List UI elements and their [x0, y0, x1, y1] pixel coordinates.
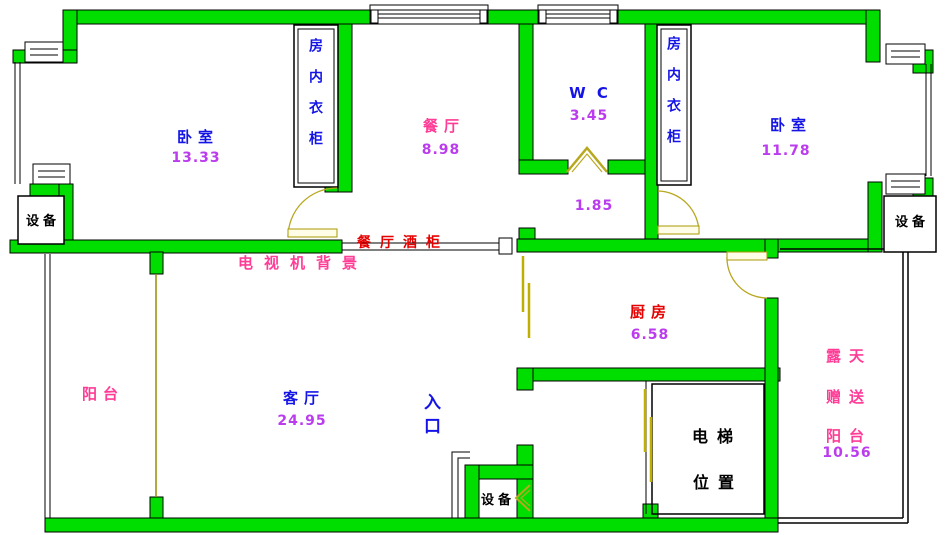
hallway-area: 1.85	[575, 199, 614, 213]
open-balcony-name-line1: 露天	[826, 349, 872, 364]
sliding-door-kitchen	[523, 256, 529, 338]
kitchen-name: 厨房	[630, 305, 672, 320]
door-wc-bifold	[567, 148, 607, 172]
living-area: 24.95	[277, 414, 326, 428]
wardrobe-right-label: 房内衣柜	[666, 36, 680, 160]
window-top-wc	[538, 5, 618, 24]
floorplan: 卧室 13.33 餐厅 8.98 W C 3.45 卧室 11.78 1.85 …	[0, 0, 950, 535]
elevator-label-line2: 位置	[693, 475, 743, 491]
equipment-label-top-right: 设备	[895, 216, 929, 229]
living-name: 客厅	[283, 391, 325, 406]
elevator-label-line1: 电梯	[692, 429, 742, 445]
entrance-label: 入口	[421, 393, 438, 441]
wc-name: W C	[569, 86, 611, 101]
walls	[10, 10, 933, 532]
kitchen-area: 6.58	[631, 328, 670, 342]
window-top-dining	[370, 5, 488, 24]
dining-area: 8.98	[422, 143, 461, 157]
bedroom-right-area: 11.78	[761, 144, 810, 158]
wardrobe-left-label: 房内衣柜	[308, 38, 322, 162]
equipment-label-top-left: 设备	[26, 215, 60, 228]
door-kitchen-balcony	[727, 252, 767, 298]
open-balcony-area: 10.56	[822, 446, 871, 460]
balcony-name: 阳台	[82, 387, 124, 402]
door-bedroom-left	[288, 188, 337, 237]
bedroom-left-name: 卧室	[177, 130, 219, 145]
door-bedroom-right	[658, 191, 699, 234]
elevator-box	[646, 381, 764, 514]
open-balcony-name-line3: 阳台	[826, 429, 872, 444]
tv-wall-label: 电视机背景	[238, 256, 368, 271]
floorplan-drawing	[0, 0, 950, 535]
bedroom-left-area: 13.33	[171, 151, 220, 165]
dining-name: 餐厅	[423, 119, 465, 134]
wine-cabinet-label: 餐厅酒柜	[357, 236, 449, 250]
wc-area: 3.45	[570, 109, 609, 123]
bedroom-right-name: 卧室	[770, 118, 812, 133]
open-balcony-name-line2: 赠送	[826, 390, 872, 405]
equipment-label-bottom: 设备	[481, 494, 515, 507]
open-balcony-boundary	[778, 244, 908, 523]
